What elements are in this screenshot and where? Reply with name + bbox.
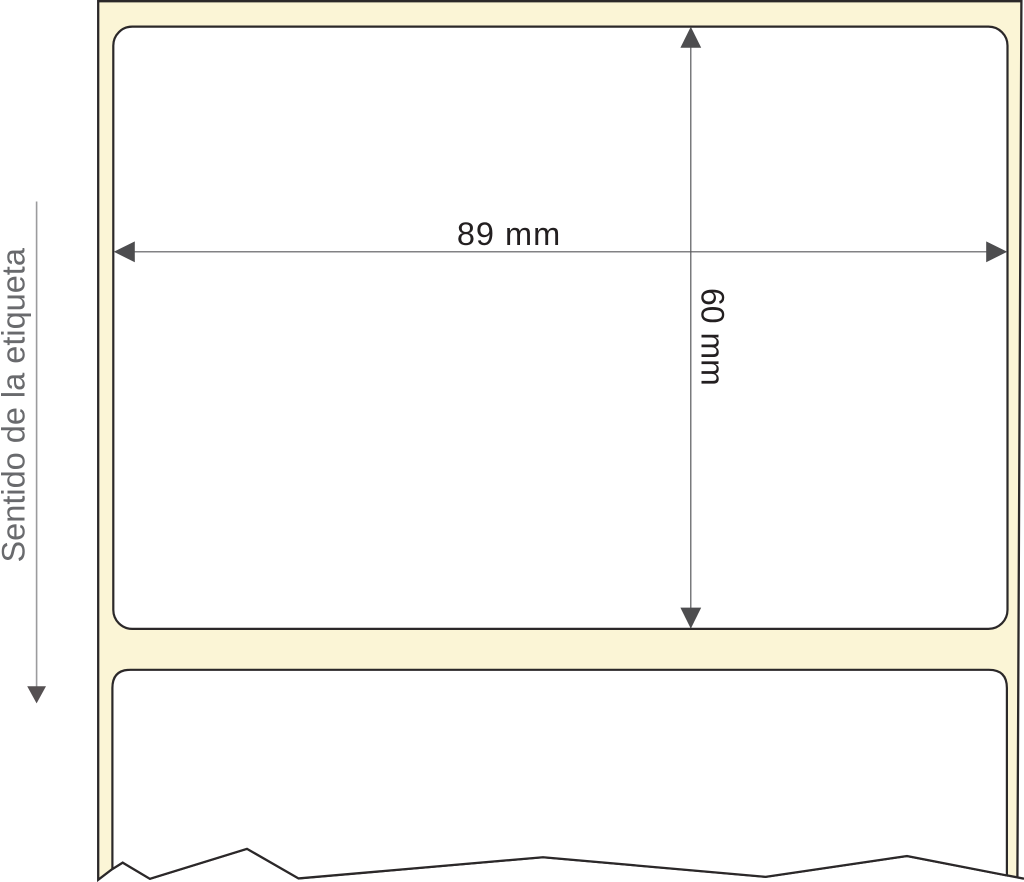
svg-text:89 mm: 89 mm (457, 216, 561, 252)
svg-text:Sentido de la etiqueta: Sentido de la etiqueta (0, 247, 32, 562)
svg-text:60 mm: 60 mm (695, 288, 731, 386)
